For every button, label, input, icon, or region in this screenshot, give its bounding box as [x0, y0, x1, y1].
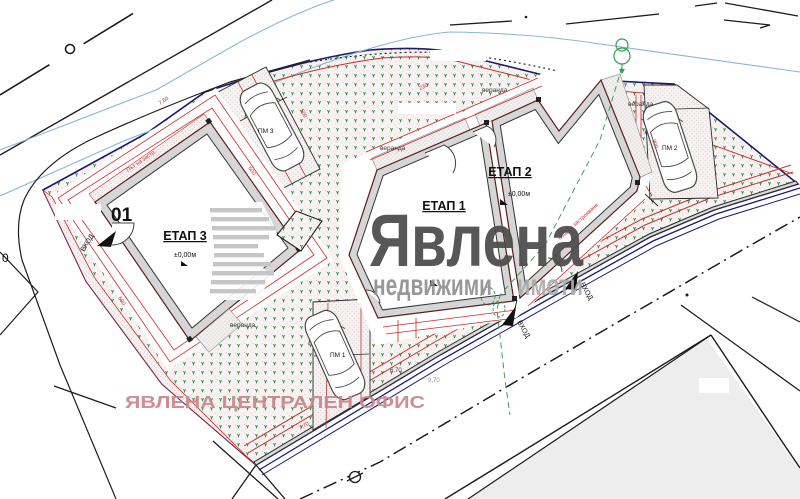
svg-text:веранда: веранда — [230, 322, 256, 329]
svg-text:6,70: 6,70 — [390, 368, 402, 374]
svg-text:±0,00м: ±0,00м — [174, 252, 196, 259]
svg-text:ПМ 3: ПМ 3 — [258, 128, 274, 135]
svg-text:ЕТАП 2: ЕТАП 2 — [488, 165, 532, 179]
svg-text:ЯВЛЕНА ЦЕНТРАЛЕН ОФИС: ЯВЛЕНА ЦЕНТРАЛЕН ОФИС — [125, 392, 425, 412]
svg-text:имоти: имоти — [517, 269, 583, 302]
svg-text:ЕТАП 3: ЕТАП 3 — [163, 229, 207, 243]
svg-text:ПМ 2: ПМ 2 — [662, 145, 678, 152]
svg-text:9,70: 9,70 — [428, 378, 440, 384]
svg-text:ПМ 1: ПМ 1 — [330, 352, 346, 359]
svg-text:веранда: веранда — [628, 101, 654, 108]
svg-text:±0,00м: ±0,00м — [508, 191, 530, 198]
svg-text:недвижими: недвижими — [373, 269, 492, 302]
svg-text:0: 0 — [2, 251, 9, 265]
